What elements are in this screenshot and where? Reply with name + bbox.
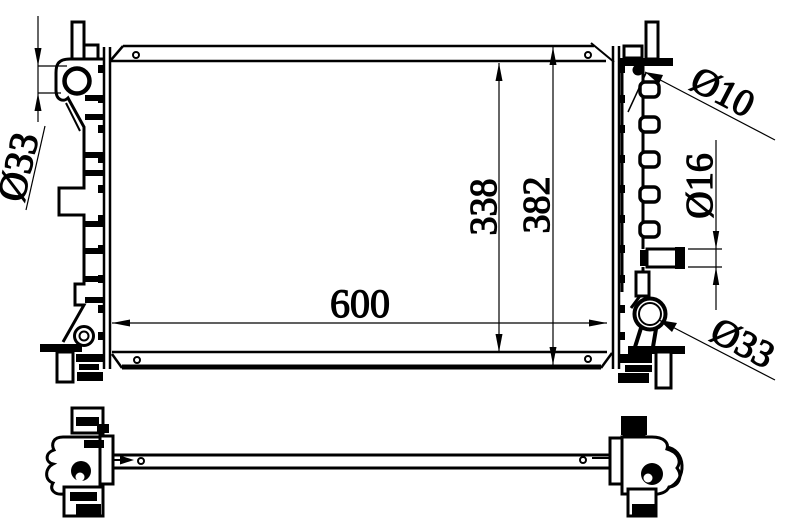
dim-label-overall-height: 382 (516, 177, 558, 234)
dim-core-width: 600 (112, 281, 607, 327)
left-mount-foot (57, 352, 73, 382)
dim-label-right-port: Ø33 (704, 310, 781, 377)
dim-left-port: Ø33 (0, 16, 67, 210)
radiator-bottom-view (47, 408, 682, 517)
plan-right-port (641, 463, 663, 485)
dim-label-core-width: 600 (330, 281, 390, 326)
core-bottom-band (112, 352, 612, 368)
plan-left-tank (47, 408, 113, 517)
core-top-band (111, 43, 614, 62)
dim-overall-height: 382 (516, 47, 558, 365)
left-mount-hole (75, 327, 94, 346)
dim-outlet-pipe: Ø16 (679, 140, 722, 310)
plan-right-tank (610, 416, 682, 517)
dim-bleed-hole: Ø10 (645, 59, 775, 140)
left-inlet-port (65, 69, 90, 94)
left-side-plate (104, 47, 110, 369)
radiator-technical-drawing: Ø33 Ø10 Ø16 Ø33 600 (0, 0, 792, 529)
plan-core-bar (106, 455, 614, 468)
drawing-canvas: Ø33 Ø10 Ø16 Ø33 600 (0, 0, 792, 529)
dim-label-bleed-hole: Ø10 (684, 59, 761, 126)
left-tank (40, 22, 103, 382)
dim-core-height: 338 (463, 63, 505, 352)
dim-right-port: Ø33 (659, 310, 781, 380)
dim-label-core-height: 338 (463, 179, 505, 236)
dim-label-outlet-pipe: Ø16 (679, 153, 721, 218)
radiator-front-view (40, 22, 685, 388)
dimension-annotations: Ø33 Ø10 Ø16 Ø33 600 (0, 16, 781, 380)
dim-label-left-port: Ø33 (0, 128, 48, 205)
outlet-pipe-stub (647, 249, 677, 267)
right-tank-pin (646, 22, 658, 59)
left-tank-pin (72, 22, 84, 59)
right-side-plate (613, 46, 619, 369)
right-mount-foot (656, 352, 671, 388)
